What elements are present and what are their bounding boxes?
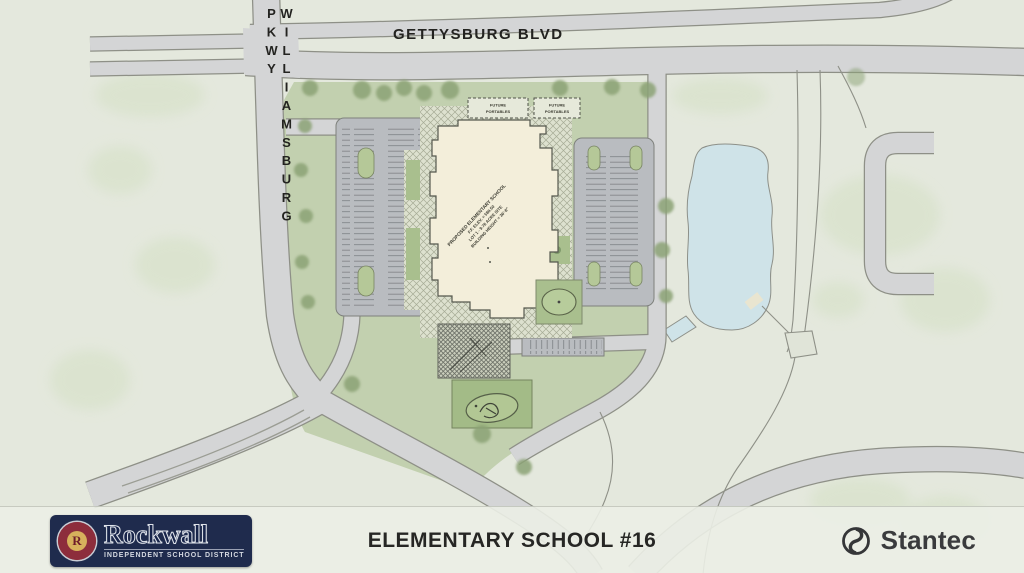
road-gettysburg-eastbound [246,59,1024,67]
south-parking-row [522,338,604,356]
future-portables: FUTURE PORTABLES FUTURE PORTABLES [468,98,580,118]
road-gettysburg-west-upper [90,41,252,44]
rockwall-isd-logo: R Rockwall INDEPENDENT SCHOOL DISTRICT [50,515,252,567]
site-plan-page: FUTURE PORTABLES FUTURE PORTABLES PROPOS… [0,0,1024,573]
district-subtitle: INDEPENDENT SCHOOL DISTRICT [104,549,244,559]
stantec-name: Stantec [881,525,976,556]
portable-label-1-line2: PORTABLES [486,109,511,114]
stantec-swoosh-icon [840,525,872,557]
seal-letter: R [67,531,87,551]
portable-label-1-line1: FUTURE [490,103,507,108]
site-plan-map: FUTURE PORTABLES FUTURE PORTABLES PROPOS… [0,0,1024,573]
portable-label-2-line1: FUTURE [549,103,566,108]
east-parking-lot [574,138,654,306]
south-green-oval [536,280,582,324]
portable-label-2-line2: PORTABLES [545,109,570,114]
road-gettysburg-west-lower [90,66,254,69]
stantec-logo: Stantec [840,525,976,557]
footer-bar: R Rockwall INDEPENDENT SCHOOL DISTRICT E… [0,506,1024,573]
rockwall-seal-icon: R [58,522,96,560]
rockwall-logo-text: Rockwall INDEPENDENT SCHOOL DISTRICT [104,522,244,559]
gettysburg-blvd-label: GETTYSBURG BLVD [393,26,564,43]
district-name: Rockwall [104,522,244,548]
project-title: ELEMENTARY SCHOOL #16 [368,529,657,553]
williamsburg-pkwy-label: WILLIAMSBURG PKWY [264,6,294,308]
